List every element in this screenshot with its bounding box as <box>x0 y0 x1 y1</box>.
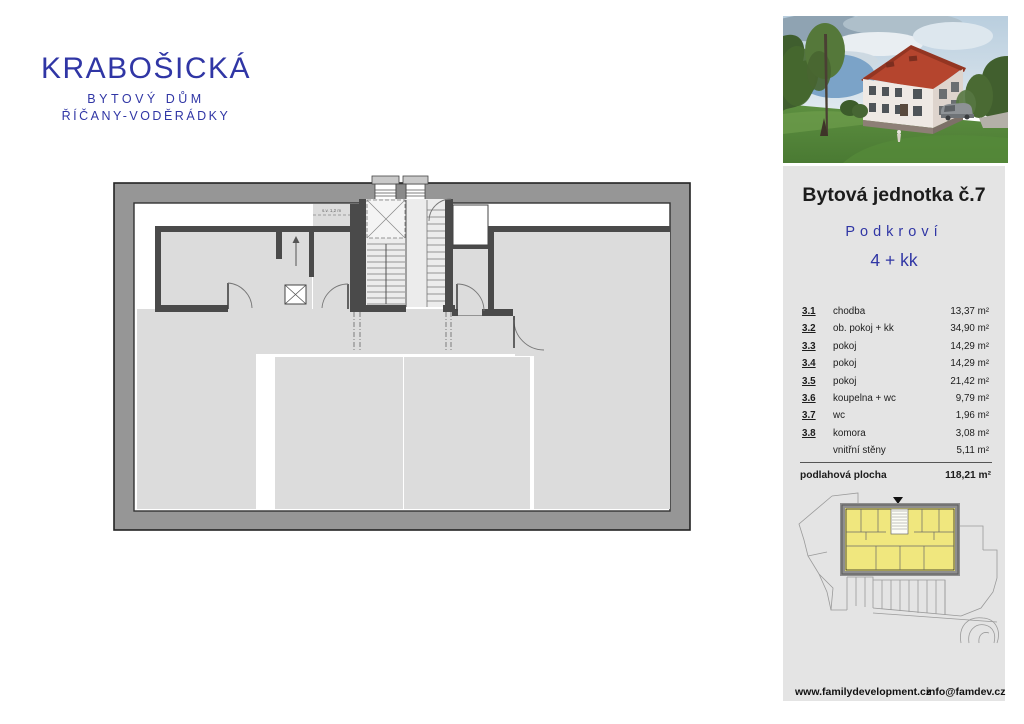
svg-text:s.v. 1,2 m: s.v. 1,2 m <box>322 208 341 213</box>
